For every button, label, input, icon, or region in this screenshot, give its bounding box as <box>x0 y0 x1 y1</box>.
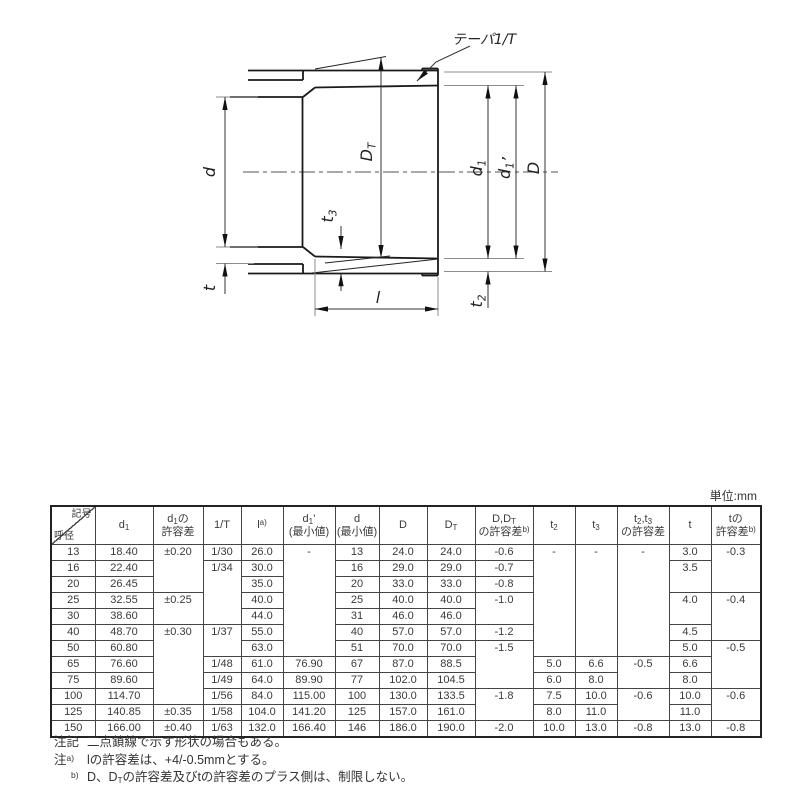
column-header: d(最小値) <box>335 506 379 545</box>
table-cell: - <box>617 545 669 657</box>
table-cell: 38.60 <box>95 609 153 625</box>
label-d: d <box>200 166 219 177</box>
row-header: 100 <box>51 689 95 705</box>
dimension-drawing: d t DT t3 l d1 d1’ D t2 テーパ1/T <box>0 0 800 460</box>
table-cell: 8.0 <box>669 673 711 689</box>
table-cell: -0.6 <box>475 545 533 561</box>
table-cell: -0.5 <box>617 657 669 689</box>
table-cell: 77 <box>335 673 379 689</box>
table-cell: 190.0 <box>427 721 475 738</box>
table-cell: 63.0 <box>241 641 283 657</box>
column-header: D <box>379 506 427 545</box>
table-cell: 140.85 <box>95 705 153 721</box>
table-cell: 100 <box>335 689 379 705</box>
table-cell: 1/34 <box>203 561 241 625</box>
column-header: D,DTの許容差b) <box>475 506 533 545</box>
table-cell: 6.6 <box>575 657 617 673</box>
page: d t DT t3 l d1 d1’ D t2 テーパ1/T 単位:mm 記号呼… <box>0 0 800 800</box>
corner-label-diameter: 呼径 <box>54 531 74 543</box>
label-d1p: d1’ <box>495 156 518 179</box>
table-row: 1318.40±0.201/3026.0-1324.024.0-0.6---3.… <box>51 545 761 561</box>
table-cell: 6.6 <box>669 657 711 673</box>
table-cell: 55.0 <box>241 625 283 641</box>
table-cell: 125 <box>335 705 379 721</box>
table-cell: 11.0 <box>575 705 617 721</box>
column-header: t2 <box>533 506 575 545</box>
table-cell: -0.8 <box>711 721 761 738</box>
table-cell: 6.0 <box>533 673 575 689</box>
table-cell: 10.0 <box>669 689 711 705</box>
table-cell: 35.0 <box>241 577 283 593</box>
table-cell: 11.0 <box>669 705 711 721</box>
table-cell: 24.0 <box>379 545 427 561</box>
table-body: 1318.40±0.201/3026.0-1324.024.0-0.6---3.… <box>51 545 761 738</box>
table-cell: ±0.30 <box>153 625 203 705</box>
table-cell: 1/49 <box>203 673 241 689</box>
table-cell: 33.0 <box>427 577 475 593</box>
column-header: 1/T <box>203 506 241 545</box>
table-cell: 1/30 <box>203 545 241 561</box>
table-cell: ±0.35 <box>153 705 203 721</box>
note-text: lの許容差は、+4/-0.5mmとする。 <box>87 753 275 767</box>
table-cell: 8.0 <box>533 705 575 721</box>
table-cell: 48.70 <box>95 625 153 641</box>
note-text: 二点鎖線で示す形状の場合もある。 <box>87 735 287 749</box>
notes: 注記二点鎖線で示す形状の場合もある。 注a)lの許容差は、+4/-0.5mmとす… <box>54 735 413 789</box>
note-a: 注a)lの許容差は、+4/-0.5mmとする。 <box>54 751 413 769</box>
row-header: 25 <box>51 593 95 609</box>
table-cell: 13.0 <box>669 721 711 738</box>
table-cell: 30.0 <box>241 561 283 577</box>
table-cell: 25 <box>335 593 379 609</box>
table-cell: 161.0 <box>427 705 475 721</box>
table-cell: -1.2 <box>475 625 533 641</box>
label-d1: d1 <box>467 160 489 177</box>
column-header: t3 <box>575 506 617 545</box>
table-cell: 18.40 <box>95 545 153 561</box>
table-cell: 5.0 <box>533 657 575 673</box>
corner-header: 記号呼径 <box>51 506 95 545</box>
table-cell: -0.7 <box>475 561 533 577</box>
table-cell: 141.20 <box>283 705 335 721</box>
table-cell: 3.0 <box>669 545 711 561</box>
table-cell: 5.0 <box>669 641 711 657</box>
table-cell: 8.0 <box>575 673 617 689</box>
table-cell: -1.8 <box>475 689 533 721</box>
table-cell: -0.6 <box>711 689 761 721</box>
table-cell: 1/58 <box>203 705 241 721</box>
label-t2: t2 <box>467 295 489 308</box>
table-cell: -0.5 <box>711 641 761 689</box>
table-cell: 31 <box>335 609 379 625</box>
table-cell: 61.0 <box>241 657 283 673</box>
table-cell: 87.0 <box>379 657 427 673</box>
table-cell: 157.0 <box>379 705 427 721</box>
table-cell: -1.5 <box>475 641 533 689</box>
label-DT: DT <box>357 141 379 161</box>
table-cell: -2.0 <box>475 721 533 738</box>
table-cell: 102.0 <box>379 673 427 689</box>
table-cell: 70.0 <box>379 641 427 657</box>
column-header: t2,t3の許容差 <box>617 506 669 545</box>
table-cell: 89.60 <box>95 673 153 689</box>
note-prefix: b) <box>54 768 87 786</box>
table-cell: 29.0 <box>427 561 475 577</box>
note-b: b)D、DTの許容差及びtの許容差のプラス側は、制限しない。 <box>54 768 413 789</box>
table-cell: 76.60 <box>95 657 153 673</box>
table-cell: -0.3 <box>711 545 761 593</box>
row-header: 13 <box>51 545 95 561</box>
table-cell: 46.0 <box>379 609 427 625</box>
table-cell: -1.0 <box>475 593 533 625</box>
label-D: D <box>524 162 543 174</box>
label-t: t <box>200 284 219 291</box>
table-cell: -0.8 <box>617 721 669 738</box>
table-cell: 40.0 <box>427 593 475 609</box>
row-header: 20 <box>51 577 95 593</box>
table-cell: 104.0 <box>241 705 283 721</box>
table-cell: 67 <box>335 657 379 673</box>
table-cell: 76.90 <box>283 657 335 673</box>
table-cell: 3.5 <box>669 561 711 593</box>
row-header: 16 <box>51 561 95 577</box>
table-cell: 88.5 <box>427 657 475 673</box>
note-prefix: 注記 <box>54 735 87 751</box>
row-header: 65 <box>51 657 95 673</box>
table-cell: - <box>575 545 617 657</box>
table-cell: 32.55 <box>95 593 153 609</box>
label-taper: テーパ1/T <box>452 32 517 48</box>
note-remark: 注記二点鎖線で示す形状の場合もある。 <box>54 735 413 751</box>
table-header: 記号呼径d1d1の許容差1/Tla)d1’(最小値)d(最小値)DDTD,DTの… <box>51 506 761 545</box>
column-header: tの許容差b) <box>711 506 761 545</box>
table-cell: 13 <box>335 545 379 561</box>
taper-leader <box>417 46 470 81</box>
taper-lines <box>312 57 438 274</box>
table-cell: 16 <box>335 561 379 577</box>
row-header: 40 <box>51 625 95 641</box>
table-cell: 64.0 <box>241 673 283 689</box>
table-cell: 1/56 <box>203 689 241 705</box>
table-cell: 40.0 <box>241 593 283 609</box>
table-cell: 10.0 <box>575 689 617 705</box>
table-cell: 29.0 <box>379 561 427 577</box>
column-header: la) <box>241 506 283 545</box>
column-header: d1 <box>95 506 153 545</box>
table-cell: 114.70 <box>95 689 153 705</box>
table-cell: ±0.20 <box>153 545 203 593</box>
extension-lines <box>216 72 552 316</box>
label-l: l <box>376 288 381 307</box>
table-cell: 51 <box>335 641 379 657</box>
table-cell: 60.80 <box>95 641 153 657</box>
table-cell: 46.0 <box>427 609 475 625</box>
table-cell: 10.0 <box>533 721 575 738</box>
note-text: D、DTの許容差及びtの許容差のプラス側は、制限しない。 <box>87 770 413 784</box>
table-cell: 115.00 <box>283 689 335 705</box>
row-header: 30 <box>51 609 95 625</box>
column-header: DT <box>427 506 475 545</box>
table-cell: 57.0 <box>427 625 475 641</box>
table-cell: 133.5 <box>427 689 475 705</box>
table-cell: 20 <box>335 577 379 593</box>
row-header: 75 <box>51 673 95 689</box>
table-cell: 22.40 <box>95 561 153 577</box>
table-cell: - <box>283 545 335 657</box>
column-header: d1の許容差 <box>153 506 203 545</box>
table-cell: 57.0 <box>379 625 427 641</box>
table-cell: -0.8 <box>475 577 533 593</box>
table-cell: -0.6 <box>617 689 669 721</box>
table-cell: 44.0 <box>241 609 283 625</box>
column-header: d1’(最小値) <box>283 506 335 545</box>
label-t3: t3 <box>318 210 340 223</box>
table-cell: 40.0 <box>379 593 427 609</box>
table-cell: 24.0 <box>427 545 475 561</box>
table-cell: 33.0 <box>379 577 427 593</box>
table-cell: 7.5 <box>533 689 575 705</box>
row-header: 50 <box>51 641 95 657</box>
table-cell: 26.45 <box>95 577 153 593</box>
table-cell: 26.0 <box>241 545 283 561</box>
table-cell: -0.4 <box>711 593 761 641</box>
table-cell: 70.0 <box>427 641 475 657</box>
table-cell: 1/37 <box>203 625 241 657</box>
table-cell: ±0.25 <box>153 593 203 625</box>
table-cell: 1/48 <box>203 657 241 673</box>
table-cell: 4.0 <box>669 593 711 625</box>
dimension-table: 記号呼径d1d1の許容差1/Tla)d1’(最小値)d(最小値)DDTD,DTの… <box>50 505 762 738</box>
unit-label: 単位:mm <box>710 487 757 504</box>
table-cell: 13.0 <box>575 721 617 738</box>
table-cell: 84.0 <box>241 689 283 705</box>
row-header: 125 <box>51 705 95 721</box>
note-prefix: 注a) <box>54 751 87 769</box>
corner-label-symbol: 記号 <box>72 509 92 521</box>
column-header: t <box>669 506 711 545</box>
table-cell: 40 <box>335 625 379 641</box>
table-cell: 104.5 <box>427 673 475 689</box>
table-cell: 4.5 <box>669 625 711 641</box>
table-cell: - <box>533 545 575 657</box>
table-cell: 130.0 <box>379 689 427 705</box>
table-cell: 89.90 <box>283 673 335 689</box>
